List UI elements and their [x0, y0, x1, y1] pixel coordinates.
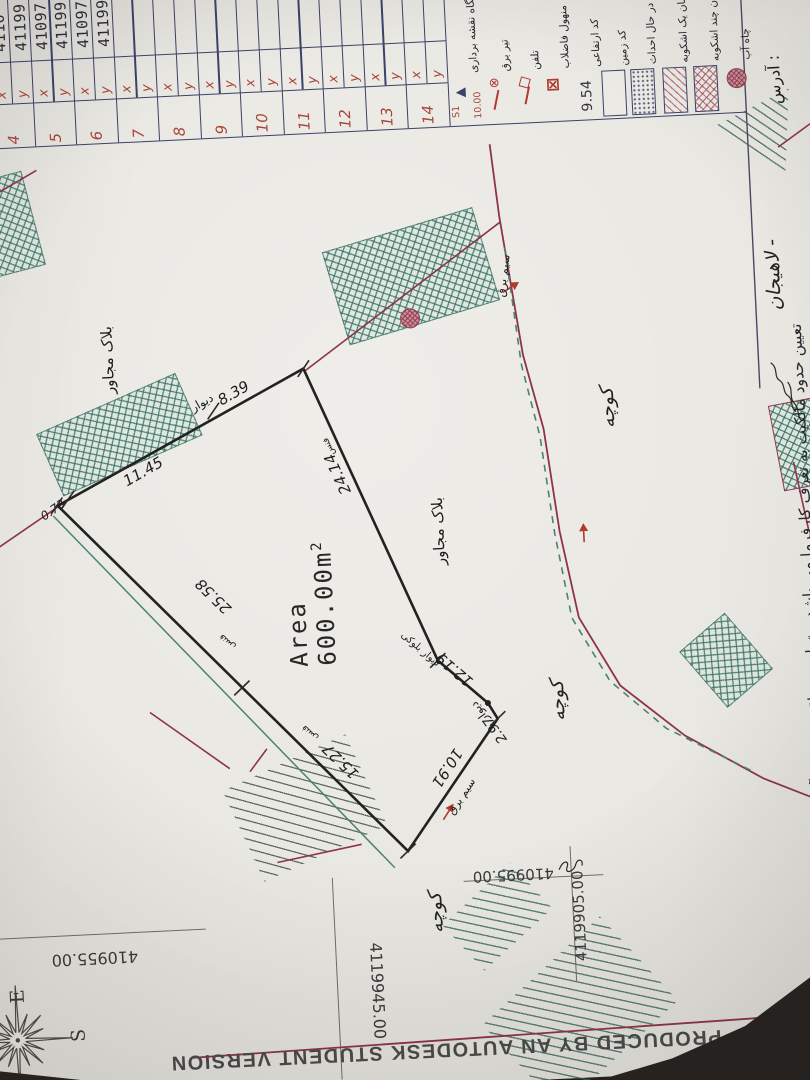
compass-south-label: S [67, 1028, 90, 1042]
survey-station-height: 10.00 [472, 91, 484, 119]
point-number: 12 [336, 109, 355, 129]
legend-label-water-well: چاه آب [739, 28, 753, 60]
coord-x-label: x [326, 75, 341, 83]
coord-y-label: y [98, 86, 113, 94]
parcel-green-offset-line [53, 500, 395, 883]
land-code-swatch [601, 70, 627, 117]
coord-y-label: y [264, 78, 279, 86]
manhole-icon: ⊠ [545, 75, 560, 96]
coord-x-label: x [36, 89, 51, 97]
compass-rose [0, 972, 89, 1080]
coord-y-label: y [57, 88, 72, 96]
point-number: 8 [170, 126, 188, 136]
coord-y-label: y [430, 70, 445, 78]
coord-x-label: x [285, 77, 300, 85]
address-city: لاهیجان - [761, 239, 786, 312]
coord-x-label: x [160, 83, 175, 91]
coord-y-label: y [388, 72, 403, 80]
street-maroon-line [490, 127, 810, 837]
parcel-boundary [52, 360, 504, 867]
dimension-tick-marks [44, 352, 512, 875]
compass-east-label: E [6, 989, 29, 1004]
coord-y-value: 41199 [10, 3, 30, 51]
coord-y-label: y [347, 74, 362, 82]
alley-label-ne: کوچه [596, 387, 620, 429]
coord-y-label: y [305, 76, 320, 84]
multi-story-swatch [693, 65, 719, 112]
legend-label-power-pole: تیر برق [499, 39, 513, 72]
coord-x-label: x [119, 85, 134, 93]
coord-x-label: x [77, 87, 92, 95]
adjacent-boundary-red-lines [0, 112, 810, 876]
power-pole-icon: ⊗ [488, 76, 500, 92]
coord-y-label: y [222, 80, 237, 88]
point-number: 4 [5, 135, 23, 145]
point-number: 11 [294, 111, 313, 131]
street-edge-lines [490, 127, 810, 837]
adjacent-block-label-west: بلاک مجاور [97, 326, 118, 395]
coord-y-label: y [181, 82, 196, 90]
adjacent-block-label-center: بلاک مجاور [428, 497, 449, 566]
under-construction-swatch [630, 68, 656, 115]
coord-x-value: 41097 [72, 0, 92, 48]
coord-y-label: y [15, 90, 30, 98]
point-number: 9 [212, 124, 230, 134]
point-number: 7 [129, 128, 147, 138]
coord-x-label: x [202, 81, 217, 89]
coord-y-label: y [140, 84, 155, 92]
handwriting-scribbles [535, 361, 810, 872]
address-label: آدرس : [764, 55, 785, 105]
one-story-swatch [662, 67, 688, 114]
paper-sheet: 411041199xy44109741199xy54109741199xy6xy… [0, 0, 810, 1080]
area-label: Area 600.00m2 [280, 539, 342, 667]
coord-y-value: 41199 [93, 0, 113, 47]
elevation-code-value: 9.54 [579, 80, 597, 112]
legend-label-land-code: کد زمین [616, 30, 630, 66]
photographed-survey-map: 411041199xy44109741199xy54109741199xy6xy… [0, 0, 810, 1080]
alley-label-s: کوچه [424, 892, 448, 934]
survey-linework [0, 0, 810, 1080]
power-line-dashed [505, 237, 751, 781]
coord-y-value: 41199 [51, 1, 71, 49]
survey-station-icon: ▲ [453, 87, 468, 98]
alley-label-e: کوچه [546, 680, 570, 722]
legend-label-telephone: تلفن [529, 50, 542, 70]
legend-label-elevation-code: کد ارتفاعی [589, 18, 603, 67]
coord-x-label: x [409, 71, 424, 79]
coord-x-label: x [0, 91, 10, 99]
point-number: 5 [46, 132, 64, 142]
point-number: 10 [253, 113, 272, 133]
point-number: 13 [377, 107, 396, 127]
survey-station-id: S1 [451, 105, 463, 118]
coord-x-value: 41097 [31, 2, 51, 50]
point-number: 6 [88, 130, 106, 140]
point-number: 14 [419, 105, 438, 125]
coord-x-label: x [368, 73, 383, 81]
coord-x-label: x [243, 79, 258, 87]
